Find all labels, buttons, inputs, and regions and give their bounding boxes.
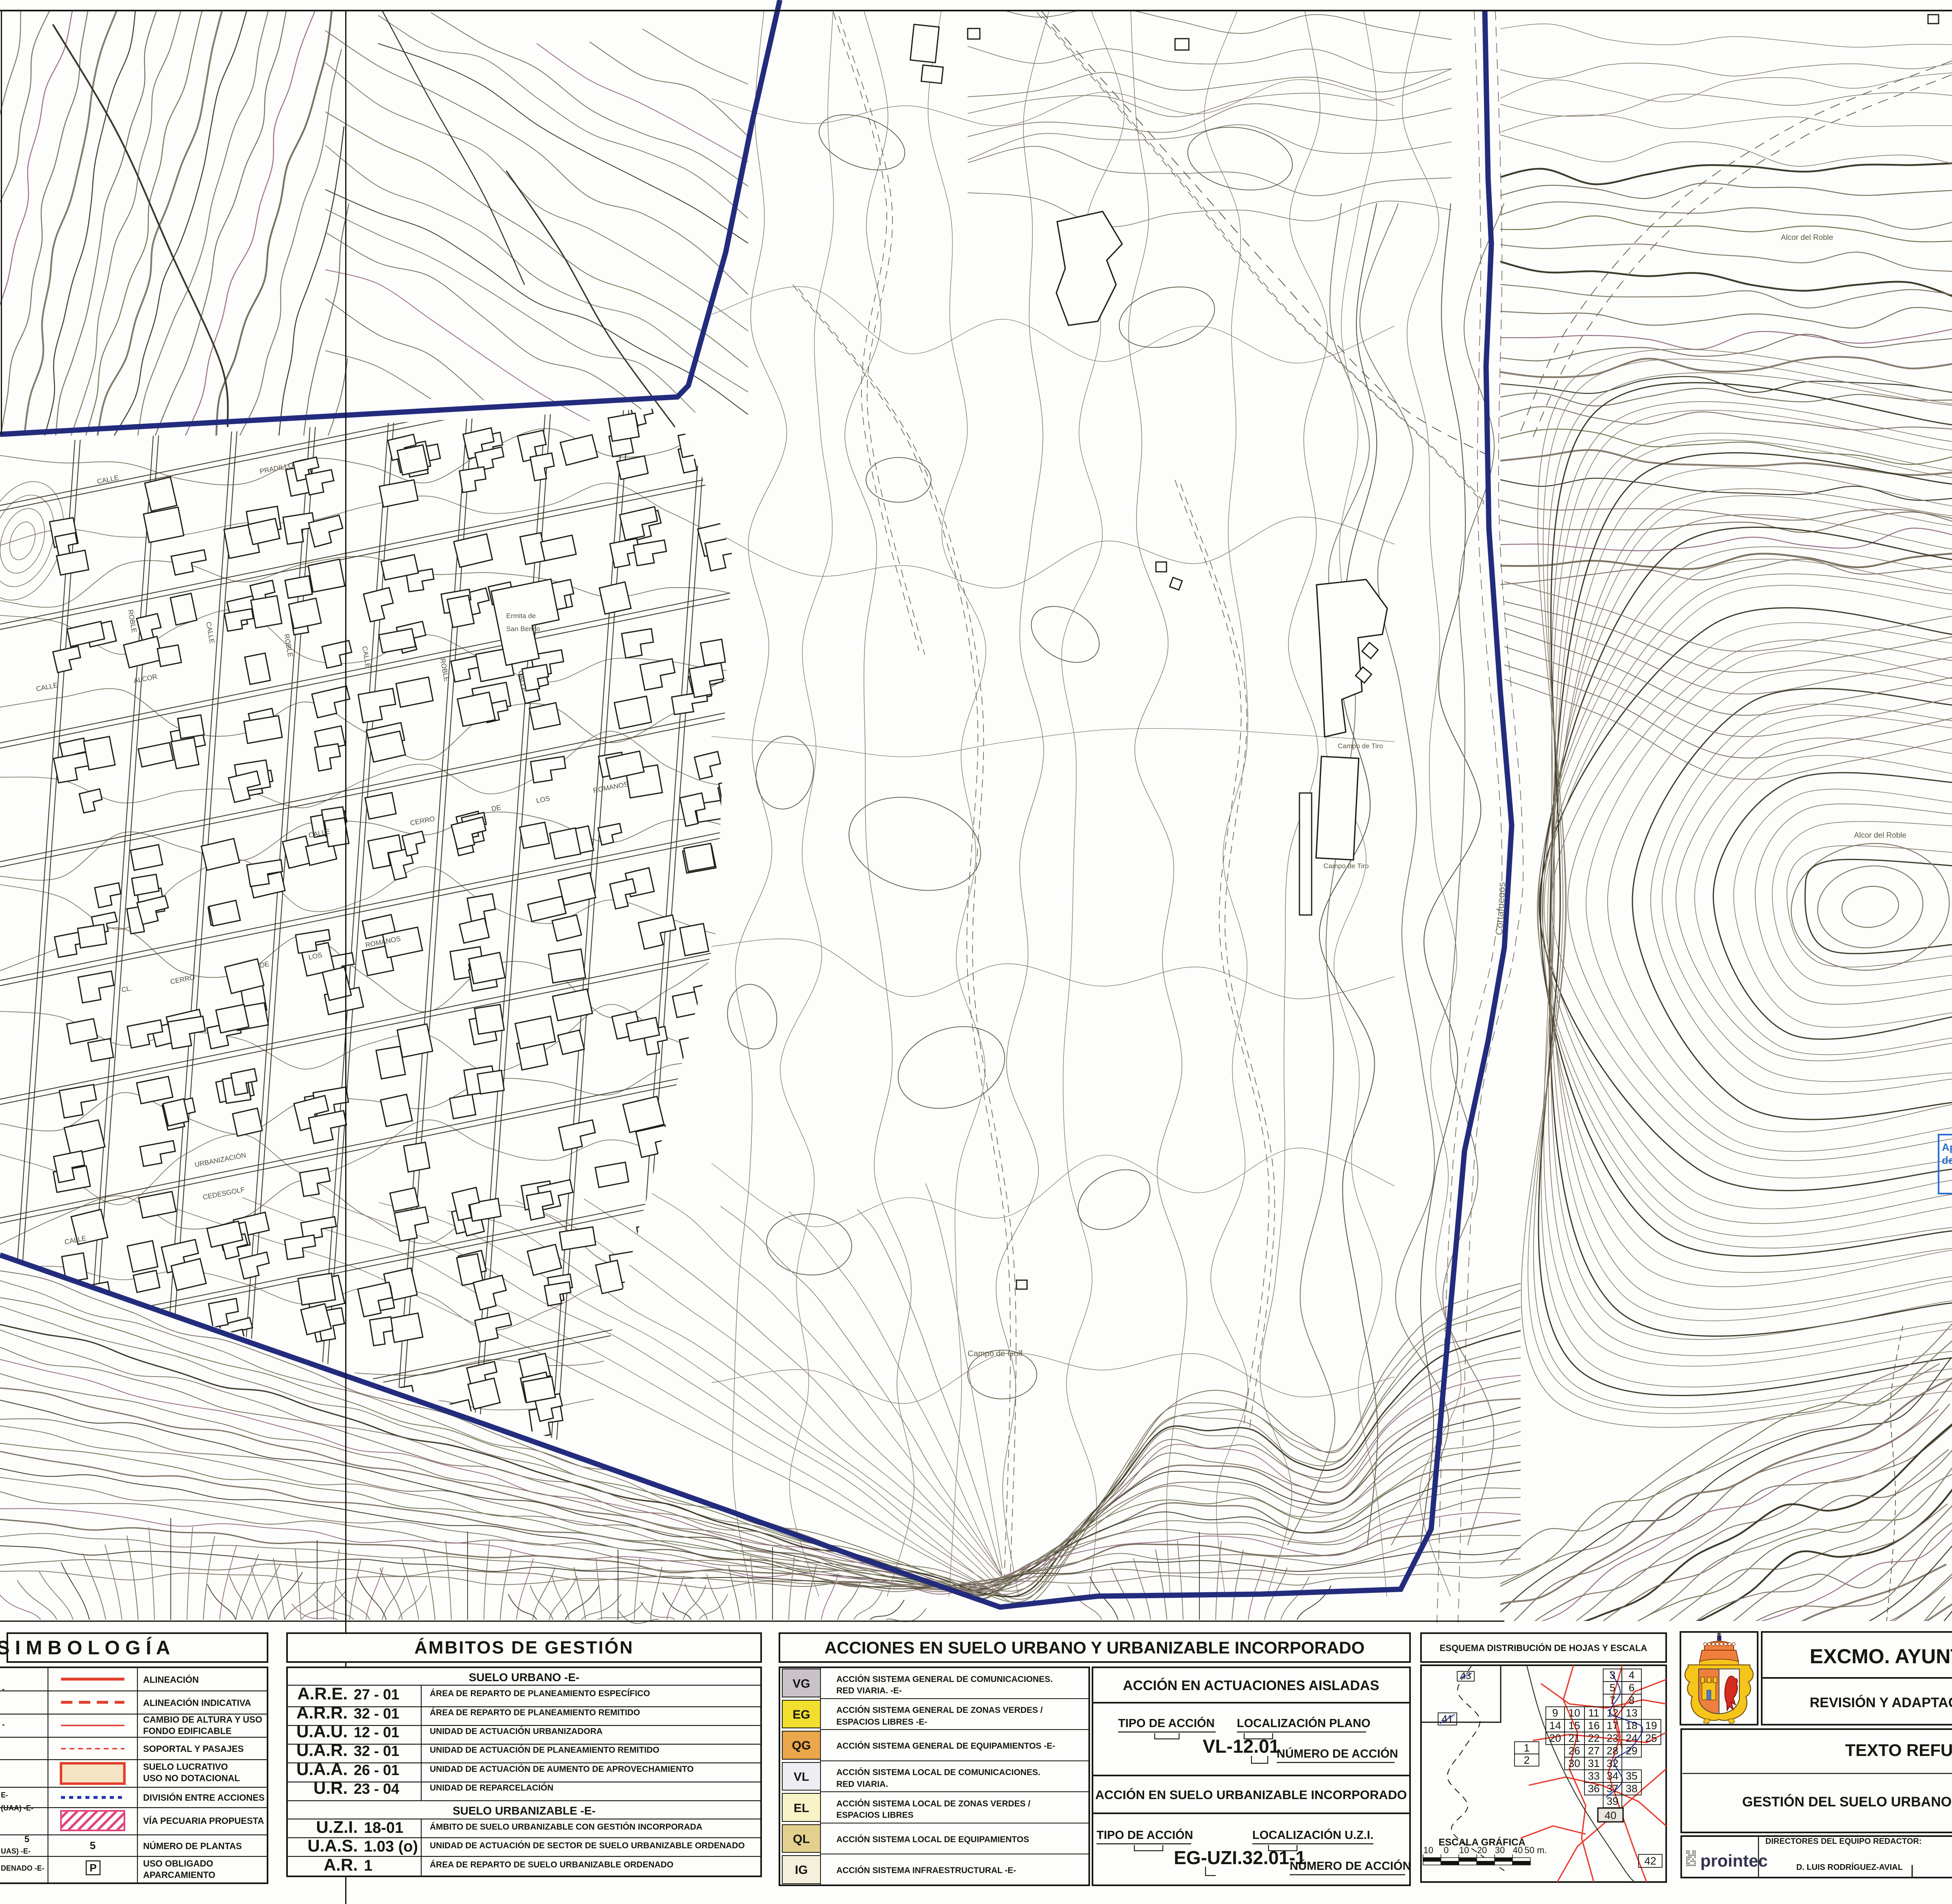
svg-text:ALINEACIÓN: ALINEACIÓN — [143, 1675, 199, 1685]
svg-text:(UAA) -E-: (UAA) -E- — [1, 1804, 33, 1812]
svg-text:APARCAMIENTO: APARCAMIENTO — [143, 1870, 215, 1880]
svg-text:30: 30 — [1495, 1845, 1505, 1855]
svg-text:NÚMERO DE PLANTAS: NÚMERO DE PLANTAS — [143, 1841, 242, 1851]
svg-text:21: 21 — [1569, 1732, 1580, 1744]
svg-text:1: 1 — [1524, 1742, 1530, 1754]
svg-text:9: 9 — [1552, 1707, 1558, 1719]
svg-text:ACCIONES EN SUELO URBANO Y URB: ACCIONES EN SUELO URBANO Y URBANIZABLE I… — [825, 1638, 1365, 1657]
svg-text:A.R.: A.R. — [324, 1855, 358, 1874]
svg-text:3: 3 — [1610, 1669, 1615, 1681]
svg-text:17: 17 — [1607, 1719, 1619, 1732]
svg-text:5: 5 — [90, 1839, 96, 1852]
svg-text:DIRECTORES DEL EQUIPO REDACTOR: DIRECTORES DEL EQUIPO REDACTOR: — [1765, 1837, 1922, 1846]
svg-text:ÁMBITO DE SUELO URBANIZABLE CO: ÁMBITO DE SUELO URBANIZABLE CON GESTIÓN … — [430, 1822, 702, 1832]
svg-text:SUELO URBANIZABLE -E-: SUELO URBANIZABLE -E- — [453, 1804, 596, 1817]
svg-text:32 - 01: 32 - 01 — [354, 1705, 399, 1722]
svg-text:14: 14 — [1549, 1719, 1561, 1732]
svg-text:1: 1 — [364, 1857, 372, 1874]
svg-text:ACCIÓN SISTEMA LOCAL DE ZONAS: ACCIÓN SISTEMA LOCAL DE ZONAS VERDES / — [836, 1799, 1030, 1808]
svg-text:ÁREA DE REPARTO DE PLANEAMIENT: ÁREA DE REPARTO DE PLANEAMIENTO ESPECÍFI… — [430, 1689, 650, 1698]
svg-text:UAS) -E-: UAS) -E- — [1, 1847, 30, 1855]
svg-text:5: 5 — [24, 1834, 29, 1844]
svg-text:Ap: Ap — [1942, 1141, 1952, 1153]
svg-text:Campo de Tiro: Campo de Tiro — [1338, 742, 1383, 750]
svg-text:IG: IG — [795, 1863, 808, 1877]
svg-text:29: 29 — [1626, 1745, 1638, 1757]
svg-text:EL: EL — [794, 1802, 809, 1815]
svg-text:0: 0 — [1444, 1845, 1449, 1855]
svg-text:ÁREA DE REPARTO DE SUELO URBAN: ÁREA DE REPARTO DE SUELO URBANIZABLE ORD… — [430, 1860, 673, 1869]
svg-text:prointec: prointec — [1700, 1851, 1768, 1870]
svg-text:GESTIÓN DEL SUELO URBANO Y UR: GESTIÓN DEL SUELO URBANO Y UR — [1742, 1794, 1952, 1810]
svg-text:Alcor del Roble: Alcor del Roble — [1781, 233, 1833, 242]
svg-text:ÁREA DE REPARTO DE PLANEAMIENT: ÁREA DE REPARTO DE PLANEAMIENTO REMITIDO — [430, 1708, 640, 1717]
svg-text:SUELO URBANO -E-: SUELO URBANO -E- — [469, 1671, 579, 1684]
svg-text:36: 36 — [1588, 1782, 1600, 1795]
svg-text:18-01: 18-01 — [364, 1819, 403, 1836]
svg-text:ESPACIOS LIBRES: ESPACIOS LIBRES — [836, 1810, 914, 1820]
svg-text:12: 12 — [1607, 1707, 1619, 1719]
svg-text:U.A.A.: U.A.A. — [296, 1760, 348, 1779]
svg-text:42: 42 — [1645, 1855, 1656, 1867]
svg-text:10: 10 — [1569, 1707, 1580, 1719]
svg-text:NÚMERO DE ACCIÓN: NÚMERO DE ACCIÓN — [1277, 1747, 1398, 1760]
svg-text:-: - — [2, 1720, 5, 1729]
svg-text:27 - 01: 27 - 01 — [354, 1686, 399, 1703]
svg-text:28: 28 — [1607, 1745, 1619, 1757]
svg-text:RED VIARIA.: RED VIARIA. — [836, 1780, 888, 1789]
svg-text:CAMBIO DE ALTURA Y USO: CAMBIO DE ALTURA Y USO — [143, 1714, 262, 1725]
svg-text:20: 20 — [1477, 1845, 1487, 1855]
svg-text:U.Z.I.: U.Z.I. — [316, 1817, 358, 1836]
svg-text:VÍA PECUARIA PROPUESTA: VÍA PECUARIA PROPUESTA — [143, 1816, 264, 1826]
svg-text:TIPO DE ACCIÓN: TIPO DE ACCIÓN — [1097, 1828, 1193, 1842]
svg-text:23: 23 — [1607, 1732, 1619, 1744]
svg-text:34: 34 — [1607, 1770, 1619, 1782]
svg-text:EXCMO. AYUNT: EXCMO. AYUNT — [1810, 1645, 1952, 1668]
svg-text:22: 22 — [1588, 1732, 1600, 1744]
svg-text:2: 2 — [1524, 1754, 1530, 1766]
svg-text:A.R.R.: A.R.R. — [296, 1703, 348, 1722]
svg-text:35: 35 — [1626, 1770, 1638, 1782]
svg-text:30: 30 — [1569, 1757, 1580, 1769]
svg-text:ALINEACIÓN INDICATIVA: ALINEACIÓN INDICATIVA — [143, 1698, 251, 1708]
svg-text:8: 8 — [1629, 1694, 1634, 1706]
svg-text:ACCIÓN SISTEMA LOCAL DE COMUNI: ACCIÓN SISTEMA LOCAL DE COMUNICACIONES. — [836, 1767, 1040, 1777]
svg-text:4: 4 — [1629, 1669, 1634, 1681]
svg-text:37: 37 — [1607, 1782, 1619, 1795]
svg-text:UNIDAD DE ACTUACIÓN URBANIZADO: UNIDAD DE ACTUACIÓN URBANIZADORA — [430, 1726, 603, 1736]
svg-text:LOCALIZACIÓN U.Z.I.: LOCALIZACIÓN U.Z.I. — [1252, 1828, 1373, 1842]
svg-text:25: 25 — [1645, 1732, 1657, 1744]
svg-text:10: 10 — [1423, 1845, 1433, 1855]
svg-text:40: 40 — [1605, 1809, 1617, 1821]
svg-text:6: 6 — [1629, 1682, 1634, 1694]
svg-text:26 - 01: 26 - 01 — [354, 1762, 399, 1778]
svg-text:-: - — [2, 1685, 5, 1694]
svg-text:P: P — [89, 1862, 96, 1874]
svg-text:40: 40 — [1513, 1845, 1523, 1855]
svg-text:DENADO -E-: DENADO -E- — [1, 1864, 44, 1872]
svg-text:Ermita de: Ermita de — [506, 612, 536, 620]
svg-text:ACCIÓN SISTEMA GENERAL DE EQUI: ACCIÓN SISTEMA GENERAL DE EQUIPAMIENTOS … — [836, 1741, 1055, 1751]
svg-text:26: 26 — [1569, 1745, 1580, 1757]
svg-text:27: 27 — [1588, 1745, 1600, 1757]
svg-text:50 m.: 50 m. — [1524, 1845, 1547, 1855]
svg-text:E-: E- — [1, 1791, 8, 1799]
svg-text:U.A.U.: U.A.U. — [296, 1722, 348, 1741]
svg-text:16: 16 — [1588, 1719, 1600, 1732]
svg-text:19: 19 — [1645, 1719, 1657, 1732]
svg-text:ACCIÓN SISTEMA GENERAL DE ZONA: ACCIÓN SISTEMA GENERAL DE ZONAS VERDES / — [836, 1705, 1043, 1715]
svg-text:ACCIÓN SISTEMA GENERAL DE COMU: ACCIÓN SISTEMA GENERAL DE COMUNICACIONES… — [836, 1674, 1053, 1684]
svg-text:QG: QG — [792, 1739, 811, 1752]
svg-text:20: 20 — [1549, 1732, 1561, 1744]
svg-text:SUELO LUCRATIVO: SUELO LUCRATIVO — [143, 1762, 228, 1772]
svg-text:VG: VG — [792, 1677, 810, 1691]
svg-text:UNIDAD DE REPARCELACIÓN: UNIDAD DE REPARCELACIÓN — [430, 1783, 553, 1793]
svg-text:18: 18 — [1626, 1719, 1638, 1732]
svg-text:Alcor del Roble: Alcor del Roble — [1854, 831, 1906, 840]
svg-text:10: 10 — [1459, 1845, 1469, 1855]
svg-text:A.R.E.: A.R.E. — [297, 1684, 348, 1703]
svg-text:12 - 01: 12 - 01 — [354, 1724, 399, 1741]
svg-text:EG-UZI.32.01-1: EG-UZI.32.01-1 — [1174, 1847, 1306, 1868]
svg-text:UNIDAD DE ACTUACIÓN DE PLANEAM: UNIDAD DE ACTUACIÓN DE PLANEAMIENTO REMI… — [430, 1745, 659, 1755]
svg-text:D. LUIS RODRÍGUEZ-AVIAL: D. LUIS RODRÍGUEZ-AVIAL — [1796, 1863, 1903, 1872]
svg-text:NÚMERO DE ACCIÓN: NÚMERO DE ACCIÓN — [1290, 1859, 1411, 1873]
svg-text:24: 24 — [1626, 1732, 1638, 1744]
svg-text:39: 39 — [1607, 1795, 1619, 1807]
svg-text:11: 11 — [1589, 1707, 1599, 1719]
svg-text:Campo de Tiro: Campo de Tiro — [1323, 862, 1369, 870]
svg-text:EG: EG — [792, 1708, 810, 1721]
svg-text:USO OBLIGADO: USO OBLIGADO — [143, 1858, 213, 1869]
svg-text:ÁMBITOS DE GESTIÓN: ÁMBITOS DE GESTIÓN — [414, 1637, 634, 1658]
svg-text:QL: QL — [793, 1832, 810, 1846]
svg-text:U.A.S.: U.A.S. — [307, 1836, 358, 1855]
svg-text:TIPO DE ACCIÓN: TIPO DE ACCIÓN — [1118, 1716, 1214, 1730]
svg-text:LOCALIZACIÓN PLANO: LOCALIZACIÓN PLANO — [1237, 1716, 1371, 1730]
svg-text:USO NO DOTACIONAL: USO NO DOTACIONAL — [143, 1773, 240, 1783]
svg-text:32: 32 — [1607, 1757, 1619, 1769]
svg-text:31: 31 — [1588, 1757, 1600, 1769]
svg-text:RED VIARIA. -E-: RED VIARIA. -E- — [836, 1686, 902, 1695]
svg-text:FONDO EDIFICABLE: FONDO EDIFICABLE — [143, 1726, 232, 1736]
svg-text:ACCIÓN EN SUELO URBANIZABLE IN: ACCIÓN EN SUELO URBANIZABLE INCORPORADO — [1095, 1787, 1407, 1802]
svg-text:ACCIÓN EN ACTUACIONES AISLADAS: ACCIÓN EN ACTUACIONES AISLADAS — [1123, 1678, 1379, 1693]
svg-text:ACCIÓN SISTEMA LOCAL DE EQUIPA: ACCIÓN SISTEMA LOCAL DE EQUIPAMIENTOS — [836, 1834, 1029, 1844]
svg-text:TEXTO REFUN: TEXTO REFUN — [1845, 1741, 1952, 1760]
svg-text:San Benito: San Benito — [506, 625, 540, 633]
svg-text:5: 5 — [1610, 1682, 1615, 1694]
svg-text:S I M B O L O G Í A: S I M B O L O G Í A — [0, 1637, 170, 1659]
svg-text:1.03 (o): 1.03 (o) — [364, 1838, 418, 1855]
svg-text:Campo de Golf: Campo de Golf — [968, 1349, 1023, 1358]
svg-text:23 - 04: 23 - 04 — [354, 1780, 399, 1797]
svg-text:DIVISIÓN ENTRE ACCIONES: DIVISIÓN ENTRE ACCIONES — [143, 1793, 265, 1803]
svg-text:ACCIÓN SISTEMA INFRAESTRUCTURA: ACCIÓN SISTEMA INFRAESTRUCTURAL -E- — [836, 1865, 1016, 1875]
svg-text:UNIDAD DE ACTUACIÓN DE SECTOR: UNIDAD DE ACTUACIÓN DE SECTOR DE SUELO U… — [430, 1841, 745, 1850]
svg-text:REVISIÓN Y ADAPTACI: REVISIÓN Y ADAPTACI — [1810, 1695, 1952, 1710]
svg-text:UNIDAD DE ACTUACIÓN DE AUMENTO: UNIDAD DE ACTUACIÓN DE AUMENTO DE APROVE… — [430, 1764, 694, 1774]
svg-text:ESQUEMA DISTRIBUCIÓN DE HOJ: ESQUEMA DISTRIBUCIÓN DE HOJAS Y ESCALA — [1440, 1643, 1647, 1653]
svg-text:U.A.R.: U.A.R. — [296, 1741, 348, 1760]
svg-text:32 - 01: 32 - 01 — [354, 1743, 399, 1759]
svg-text:VL: VL — [794, 1770, 809, 1784]
svg-text:U.R.: U.R. — [313, 1778, 348, 1797]
svg-text:33: 33 — [1588, 1770, 1600, 1782]
svg-text:38: 38 — [1626, 1782, 1638, 1795]
svg-text:de: de — [1942, 1154, 1952, 1166]
svg-text:SOPORTAL Y PASAJES: SOPORTAL Y PASAJES — [143, 1744, 244, 1754]
svg-text:15: 15 — [1569, 1719, 1580, 1732]
svg-text:13: 13 — [1626, 1707, 1638, 1719]
svg-text:7: 7 — [1610, 1694, 1615, 1706]
svg-text:ESPACIOS LIBRES -E-: ESPACIOS LIBRES -E- — [836, 1717, 927, 1727]
